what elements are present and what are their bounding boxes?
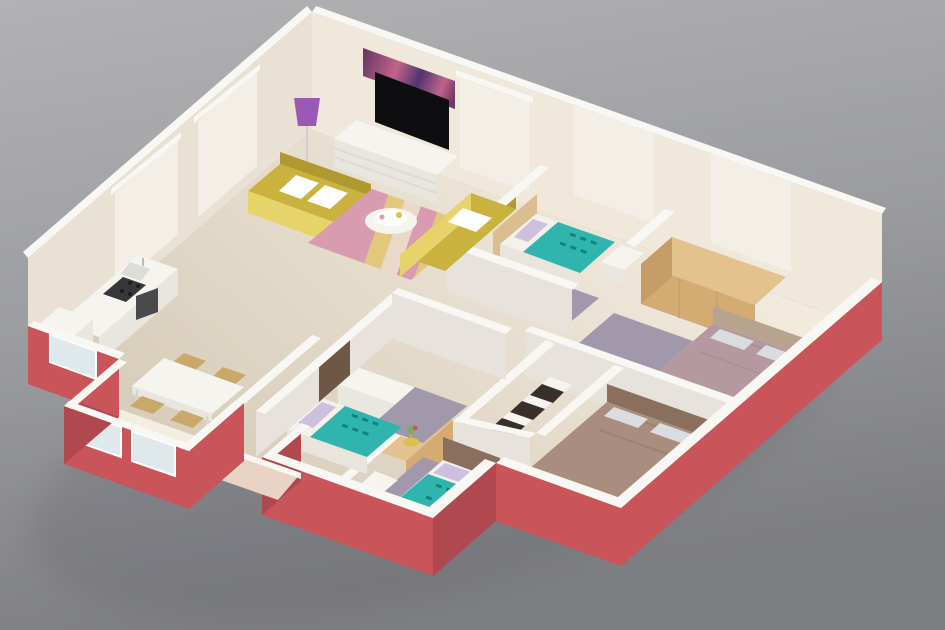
screenshot-canvas (0, 0, 945, 630)
burner-1 (128, 281, 132, 285)
coffee-table-item-1 (396, 212, 402, 218)
apartment-3d-floor-plan (0, 0, 945, 630)
side-table-flower (413, 426, 418, 431)
yellow-side-table (403, 438, 419, 447)
lamp-shade (294, 98, 320, 126)
burner-3 (120, 289, 124, 293)
burner-2 (136, 284, 140, 288)
coffee-table-item-2 (380, 215, 385, 220)
burner-4 (128, 292, 132, 296)
